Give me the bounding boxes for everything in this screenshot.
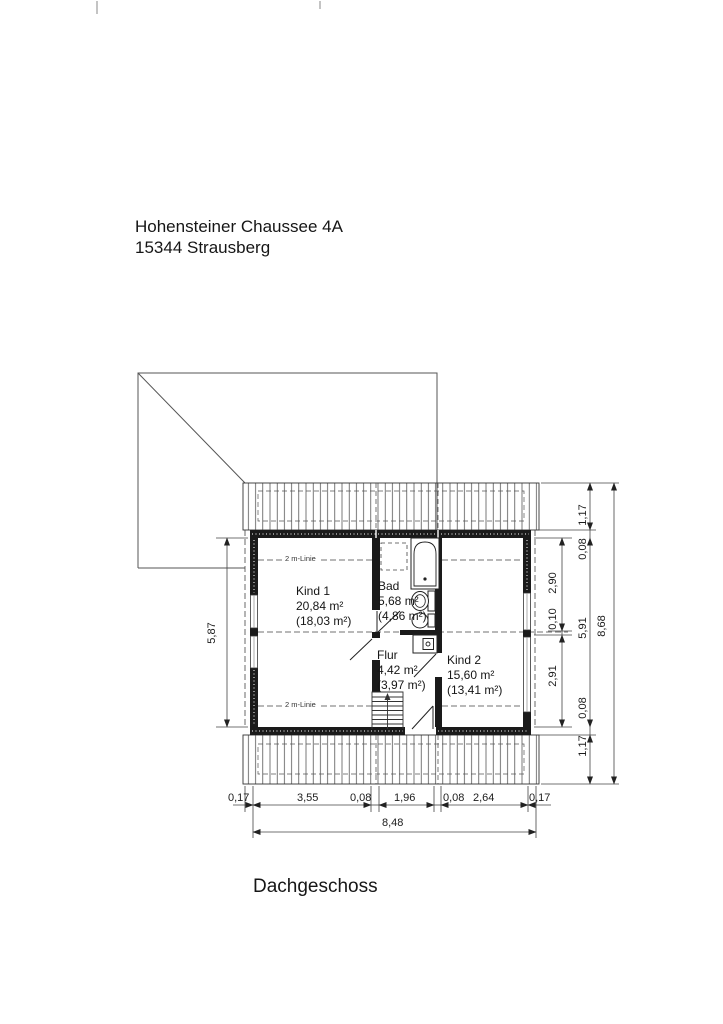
two-m-line-label-bottom: 2 m-Linie [283, 700, 318, 709]
dim-right-total: 8,68 [596, 615, 608, 636]
room-kind1-area: 20,84 m² [296, 599, 351, 614]
plan-title: Dachgeschoss [253, 876, 378, 898]
two-m-line-label-top: 2 m-Linie [283, 554, 318, 563]
dim-bottom-seg-3: 1,96 [394, 792, 415, 804]
dim-right-inner-0: 2,90 [547, 572, 559, 593]
floor-plan-page: Hohensteiner Chaussee 4A 15344 Strausber… [0, 0, 723, 1024]
roof-band-bottom [243, 735, 539, 784]
room-bad-name: Bad [378, 579, 427, 594]
roof-window-icon [381, 543, 407, 570]
dim-right-mid-1: 0,08 [577, 538, 589, 559]
roof-band-top [243, 483, 539, 530]
room-kind2-area: 15,60 m² [447, 668, 502, 683]
stairs [372, 692, 403, 729]
dim-right-mid-3: 0,08 [577, 697, 589, 718]
room-kind1-reduced: (18,03 m²) [296, 614, 351, 629]
dim-bottom-total: 8,48 [382, 817, 403, 829]
room-label-kind1: Kind 1 20,84 m² (18,03 m²) [296, 584, 351, 629]
room-bad-area: 5,68 m² [378, 594, 427, 609]
room-kind2-reduced: (13,41 m²) [447, 683, 502, 698]
door-storage [412, 706, 433, 729]
stairs-up-arrow-icon [385, 693, 391, 700]
scan-crop-marks [97, 1, 320, 14]
room-flur-name: Flur [377, 648, 426, 663]
room-label-kind2: Kind 2 15,60 m² (13,41 m²) [447, 653, 502, 698]
address-line-2: 15344 Strausberg [135, 237, 343, 258]
dim-right-mid-4: 1,17 [577, 735, 589, 756]
dim-bottom-seg-0: 0,17 [228, 792, 249, 804]
dim-right-inner-2: 2,91 [547, 665, 559, 686]
dim-bottom-seg-5: 2,64 [473, 792, 494, 804]
room-flur-reduced: (3,97 m²) [377, 678, 426, 693]
room-kind2-name: Kind 2 [447, 653, 502, 668]
dim-bottom-seg-4: 0,08 [443, 792, 464, 804]
dim-left-height: 5,87 [206, 622, 218, 643]
dim-right-mid-2: 5,91 [577, 617, 589, 638]
roof-outline [138, 373, 437, 568]
dim-bottom-seg-6: 0,17 [529, 792, 550, 804]
room-label-bad: Bad 5,68 m² (4,86 m²) [378, 579, 427, 624]
dim-bottom-seg-2: 0,08 [350, 792, 371, 804]
room-kind1-name: Kind 1 [296, 584, 351, 599]
door-kind1 [350, 639, 372, 660]
room-flur-area: 4,42 m² [377, 663, 426, 678]
room-label-flur: Flur 4,42 m² (3,97 m²) [377, 648, 426, 693]
dim-right-inner-1: 0,10 [547, 608, 559, 629]
dim-bottom-seg-1: 3,55 [297, 792, 318, 804]
room-bad-reduced: (4,86 m²) [378, 609, 427, 624]
address-line-1: Hohensteiner Chaussee 4A [135, 216, 343, 237]
dim-right-mid-0: 1,17 [577, 504, 589, 525]
floor-plan-drawing [0, 0, 723, 1024]
